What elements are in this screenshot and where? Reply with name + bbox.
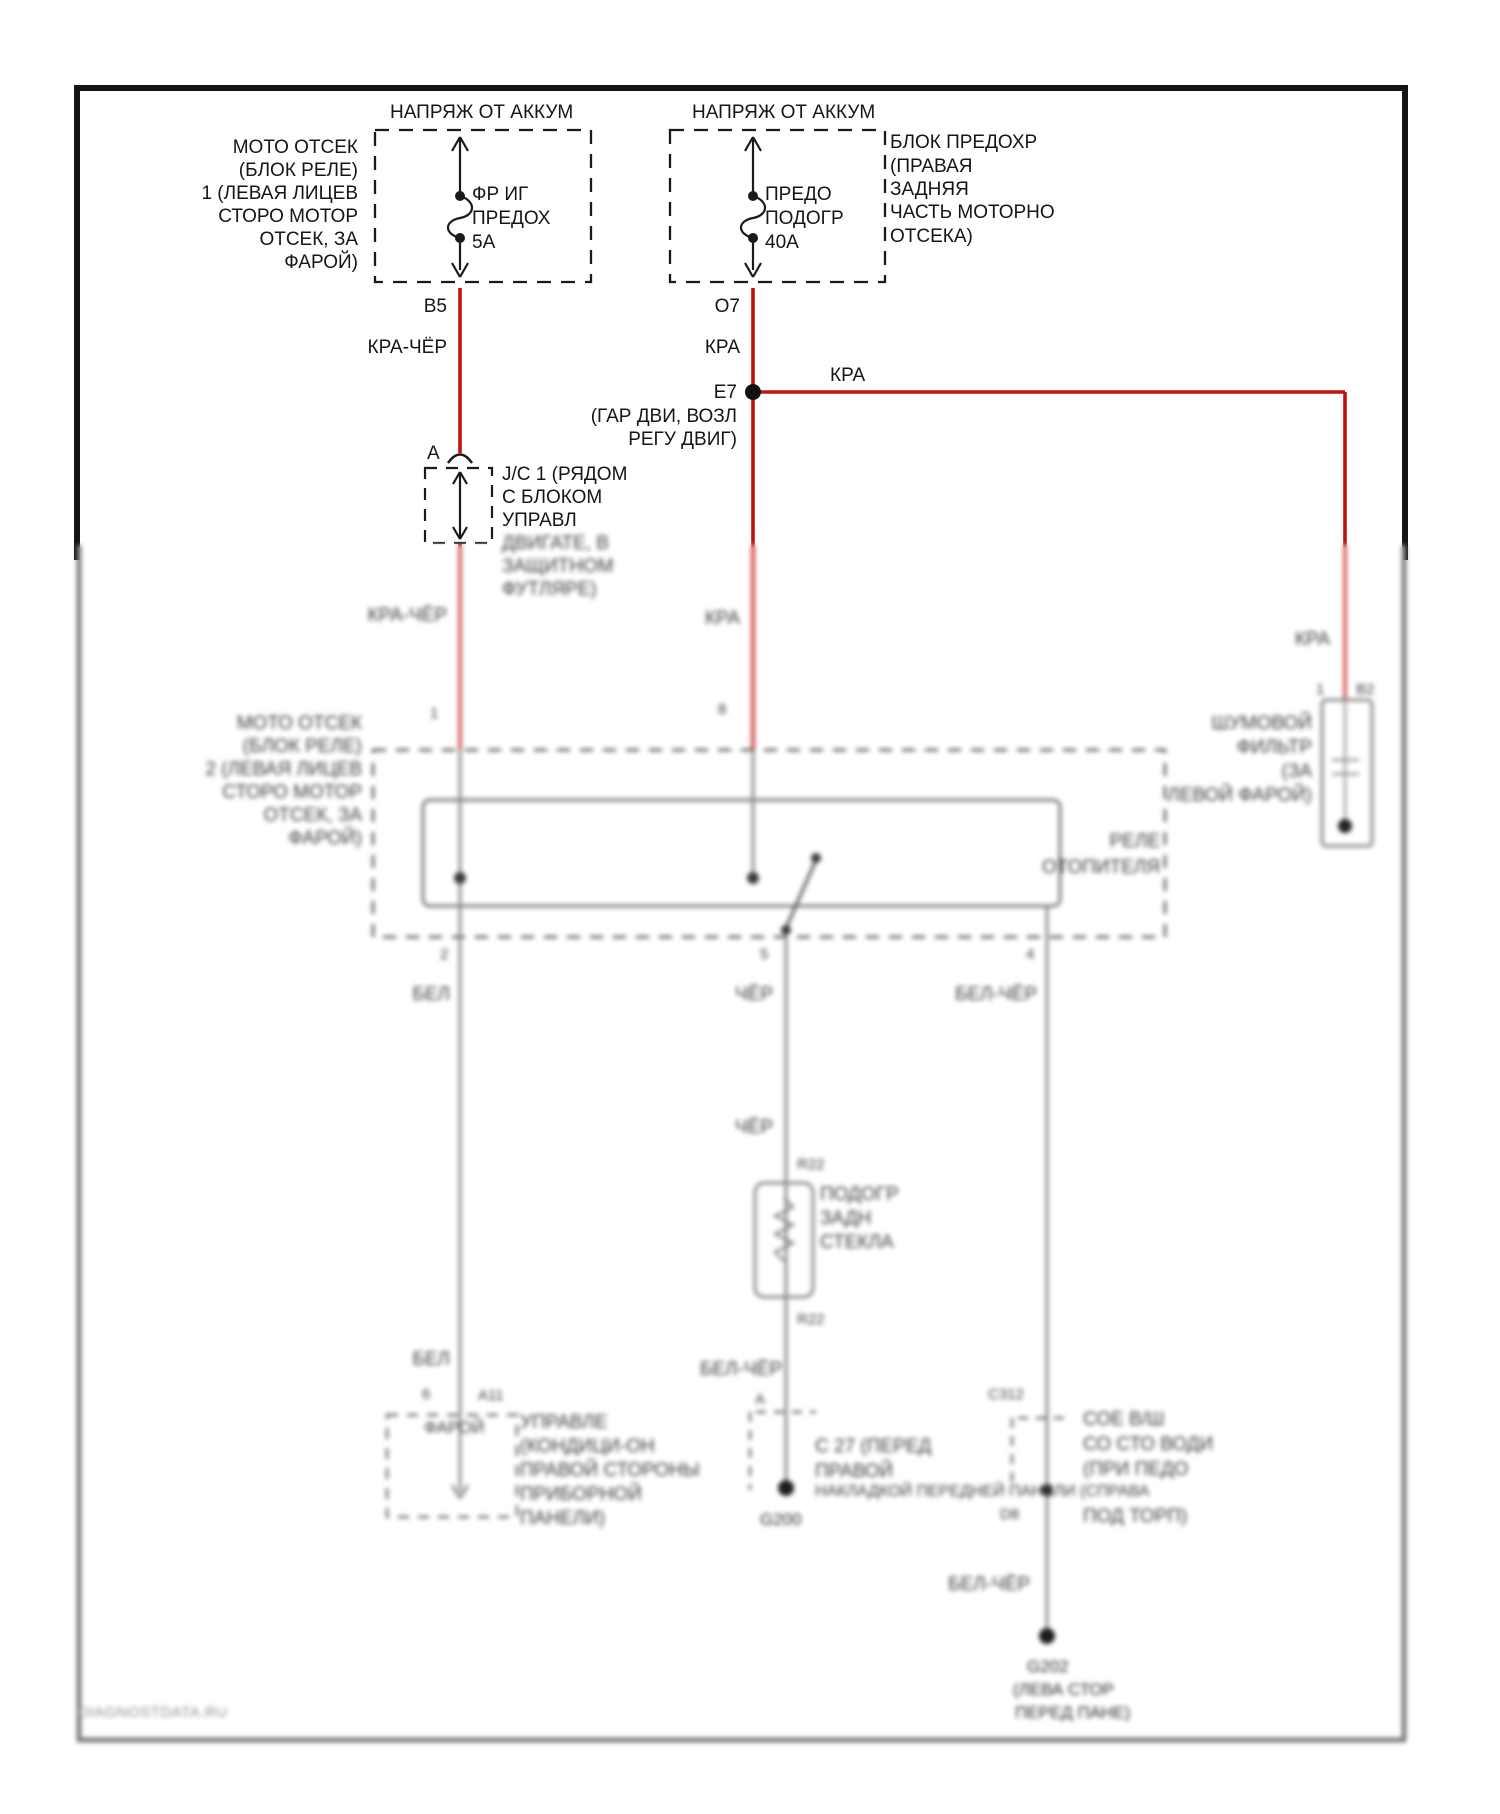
relay-box-label-line: (БЛОК РЕЛЕ): [102, 735, 362, 758]
wire-color-label: БЕЛ-ЧЁР: [870, 1573, 1030, 1596]
pin-number: 1: [1316, 681, 1324, 698]
relay-box-label-line: СТОРО МОТОР: [102, 781, 362, 804]
left-connector-label-line: ПРИБОРНОЙ: [520, 1483, 642, 1506]
pin-number: 1: [430, 705, 438, 722]
jc-label-line: ФУТЛЯРЕ): [502, 578, 597, 601]
wire-color-label: КРА: [580, 607, 740, 630]
jc-label-line: ДВИГАТЕ, В: [502, 532, 609, 555]
center-connector-label-line: С 27 (ПЕРЕД: [815, 1435, 931, 1458]
left-connector-label-line: ПРАВОЙ СТОРОНЫ: [520, 1459, 700, 1482]
relay-box-label-line: 2 (ЛЕВАЯ ЛИЦЕВ: [102, 758, 362, 781]
right-connector-label-line: (ПРИ ПЕДО: [1083, 1458, 1189, 1481]
defogger-label-line: ЗАДН: [820, 1207, 871, 1230]
left-connector-label-line: УПРАВЛЕ: [520, 1411, 607, 1434]
wire-color-label: ЧЁР: [673, 983, 773, 1006]
schematic-lines-blur: [0, 0, 1500, 1814]
filter-ground-dot: [1338, 819, 1352, 833]
left-connector-inner-label: ФАРОЙ: [424, 1416, 484, 1439]
pin-number: 4: [1026, 946, 1034, 963]
relay-name-line: РЕЛЕ: [960, 830, 1160, 853]
relay-contact-dot: [811, 853, 821, 863]
blurred-schematic-layer: ДВИГАТЕ, В ЗАЩИТНОМ ФУТЛЯРЕ) КРА-ЧЁР КРА…: [0, 0, 1500, 1814]
pin-number: 6: [422, 1386, 430, 1403]
left-connector-label-line: ПАНЕЛИ): [520, 1507, 605, 1530]
ground-dot-right: [1039, 1628, 1055, 1644]
pin-letter: А: [755, 1391, 765, 1408]
relay-box-label-line: МОТО ОТСЕК: [102, 712, 362, 735]
pin-number: 5: [760, 946, 768, 963]
watermark: DIAGNOSTDATA.RU: [78, 1704, 227, 1721]
filter-label-line: ЛЕВОЙ ФАРОЙ): [1052, 784, 1312, 807]
filter-label-line: ФИЛЬТР: [1052, 736, 1312, 759]
filter-label-line: (ЗА: [1052, 760, 1312, 783]
relay-contact-dot: [781, 925, 791, 935]
wire-color-label: КРА-ЧЁР: [287, 604, 447, 627]
pin-number: B2: [1356, 681, 1374, 698]
right-connector-label-line: ПОД ТОРП): [1083, 1505, 1187, 1528]
right-connector-label-line: СО СТО ВОДИ: [1083, 1433, 1213, 1456]
connector-ref: С312: [988, 1386, 1024, 1403]
relay-box-label-line: ФАРОЙ): [102, 827, 362, 850]
relay-junction-dot: [454, 872, 466, 884]
ground-dot-center: [778, 1480, 794, 1496]
pin-ref: D8: [1000, 1506, 1019, 1523]
pin-number: 2: [440, 946, 448, 963]
jc-label-line: ЗАЩИТНОМ: [502, 555, 614, 578]
wire-color-label: БЕЛ-ЧЁР: [877, 983, 1037, 1006]
ground-ref: G200: [760, 1508, 802, 1531]
left-connector-label-line: (КОНДИЦИ-ОН: [520, 1435, 655, 1458]
wire-color-label: БЕЛ: [350, 1348, 450, 1371]
connector-ref: R22: [797, 1311, 825, 1328]
relay-name-line: ОТОПИТЕЛЯ: [960, 856, 1160, 879]
pin-ref: А11: [478, 1387, 504, 1404]
wire-color-label: КРА: [1170, 628, 1330, 651]
filter-label-line: ШУМОВОЙ: [1052, 712, 1312, 735]
wire-color-label: ЧЁР: [673, 1116, 773, 1139]
ground-label-line: ПЕРЕД ПАНЕ): [1015, 1701, 1130, 1724]
ground-label-line: G202: [1027, 1655, 1069, 1678]
ground-label-line: (ЛЕВА СТОР: [1013, 1678, 1114, 1701]
wiring-diagram-page: НАПРЯЖ ОТ АККУМ НАПРЯЖ ОТ АККУМ МОТО ОТС…: [0, 0, 1500, 1814]
defogger-label-line: СТЕКЛА: [820, 1231, 894, 1254]
wire-color-label: БЕЛ: [350, 983, 450, 1006]
right-connector-label-line: СОЕ В/Ш: [1083, 1408, 1164, 1431]
center-connector-label-line: НАКЛАДКОЙ ПЕРЕДНЕЙ ПАНЕЛИ (СПРАВА: [815, 1480, 1149, 1503]
pin-number: 8: [718, 701, 726, 718]
relay-box-label-line: ОТСЕК, ЗА: [102, 804, 362, 827]
defogger-label-line: ПОДОГР: [820, 1183, 899, 1206]
connector-ref: R22: [797, 1156, 825, 1173]
relay-coil-dot: [747, 872, 759, 884]
wire-color-label: БЕЛ-ЧЁР: [622, 1358, 782, 1381]
